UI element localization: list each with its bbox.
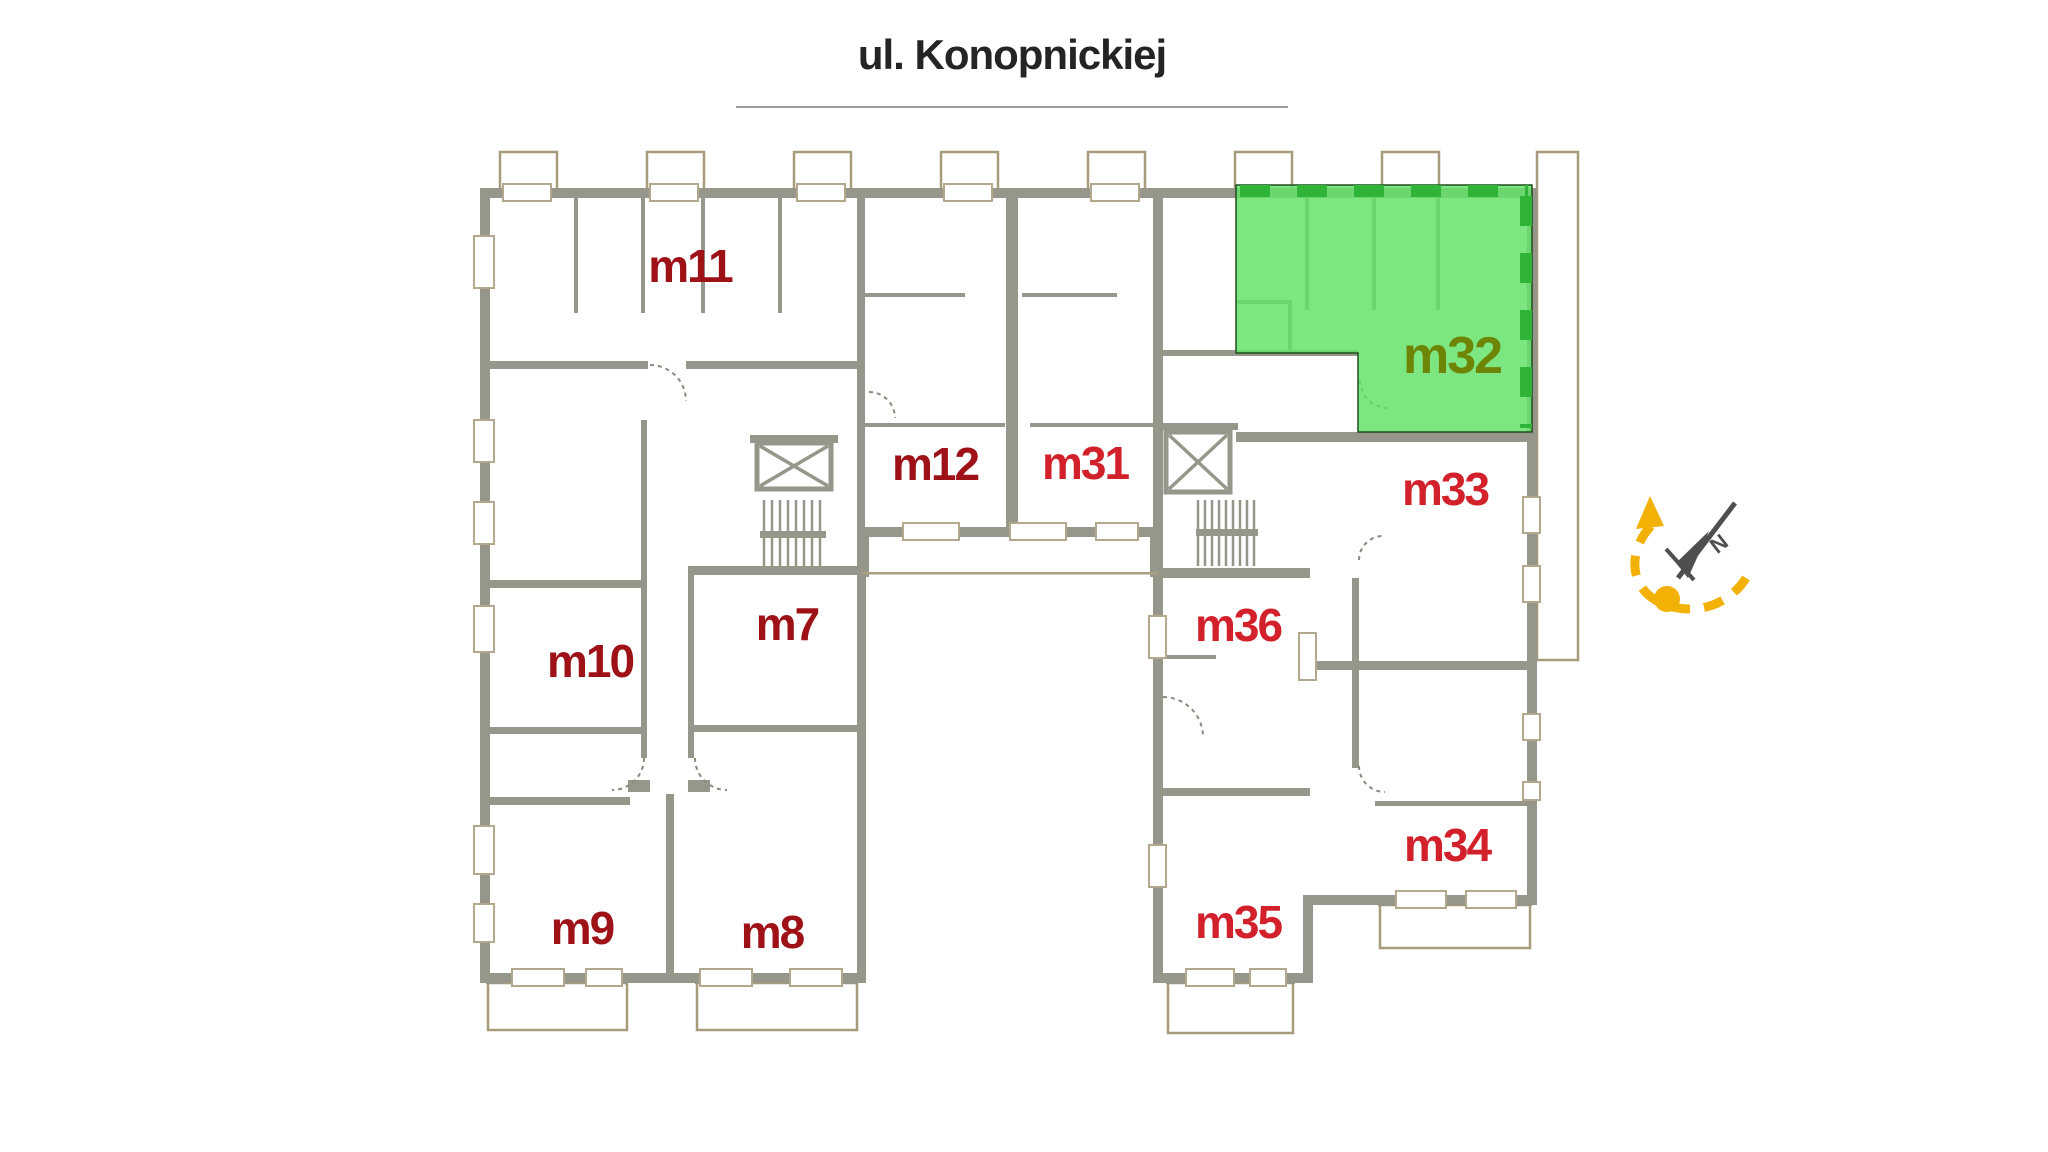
side-terrace [1537,152,1578,660]
right-stairs-icon [1196,500,1258,566]
apartment-label-m10[interactable]: m10 [547,638,633,684]
floor-plan-page: ul. Konopnickiej [0,0,2048,1152]
apartment-label-m11[interactable]: m11 [648,243,732,289]
highlighted-apartment-region[interactable] [1236,185,1532,432]
compass-north-icon: N [1635,496,1746,612]
apartment-label-m7[interactable]: m7 [756,601,818,647]
right-elevator-icon [1166,432,1230,492]
apartment-label-m12[interactable]: m12 [892,441,978,487]
apartment-label-m31[interactable]: m31 [1042,440,1128,486]
left-stairs-icon [760,500,826,570]
apartment-label-m32[interactable]: m32 [1403,330,1501,382]
apartment-m32-highlight [1236,185,1532,432]
apartment-label-m8[interactable]: m8 [741,909,803,955]
apartment-label-m36[interactable]: m36 [1195,602,1281,648]
left-elevator-icon [757,443,831,489]
elevator-stairs-cores [750,432,1258,570]
floor-plan-svg: N [0,0,2048,1152]
apartment-label-m35[interactable]: m35 [1195,899,1281,945]
apartment-label-m33[interactable]: m33 [1402,466,1488,512]
apartment-label-m9[interactable]: m9 [551,905,613,951]
apartment-label-m34[interactable]: m34 [1404,822,1490,868]
